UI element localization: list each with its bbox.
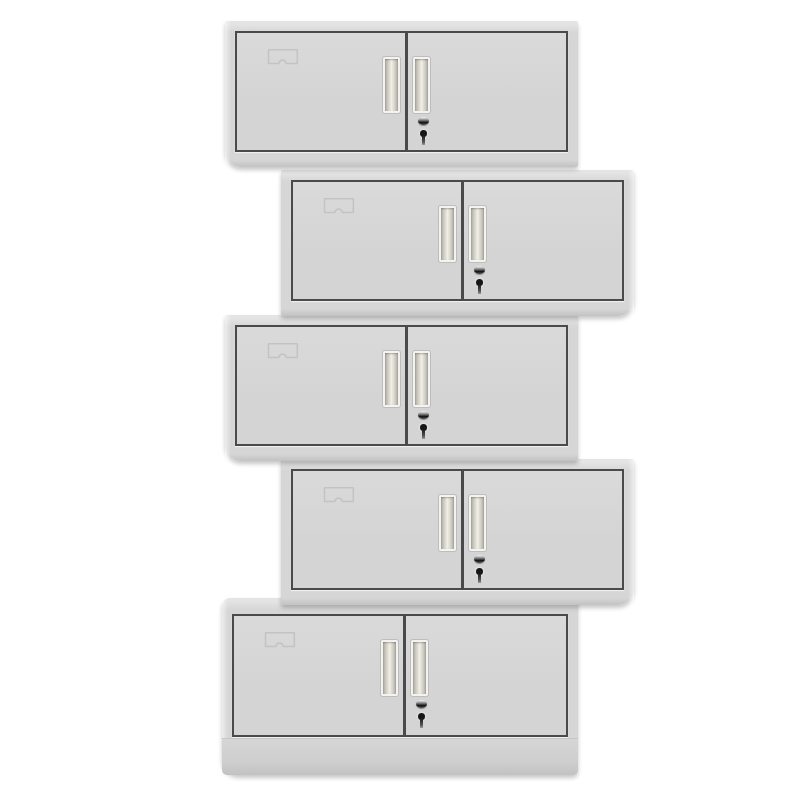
cabinet-door-right [408, 33, 566, 150]
label-card-holder-icon [264, 631, 296, 650]
door-handle-icon [383, 57, 400, 113]
cabinet-door-left [234, 616, 403, 735]
door-handle-icon [383, 351, 400, 407]
product-image [0, 0, 800, 800]
door-handle-icon [413, 351, 430, 407]
cabinet-door-left [293, 471, 461, 588]
label-card-holder-icon [323, 486, 355, 505]
door-handle-icon [469, 495, 486, 551]
cabinet-unit-1 [225, 21, 578, 167]
cabinet-door-right [464, 471, 622, 588]
door-handle-icon [413, 57, 430, 113]
keyhole [476, 279, 483, 286]
cabinet-doors [235, 325, 568, 446]
keyhole-lock-icon [418, 117, 430, 153]
cabinet-unit-2 [281, 170, 634, 316]
cabinet-base [222, 738, 578, 775]
lock-cap [474, 266, 485, 274]
cabinet-door-left [293, 182, 461, 299]
door-handle-icon [381, 640, 398, 696]
keyhole [418, 713, 425, 720]
door-handle-icon [439, 495, 456, 551]
door-handle-icon [439, 206, 456, 262]
cabinet-door-left [237, 33, 405, 150]
label-card-holder-icon [267, 342, 299, 361]
label-card-holder-icon [323, 197, 355, 216]
keyhole-lock-icon [418, 411, 430, 447]
label-card-holder-icon [267, 48, 299, 67]
cabinet-doors [235, 31, 568, 152]
lock-cap [418, 117, 429, 125]
keyhole [476, 568, 483, 575]
cabinet-doors [232, 614, 568, 737]
keyhole [420, 424, 427, 431]
keyhole [420, 130, 427, 137]
cabinet-doors [291, 180, 624, 301]
door-handle-icon [411, 640, 428, 696]
keyhole-lock-icon [474, 266, 486, 302]
lock-cap [416, 700, 427, 708]
cabinet-unit-5 [222, 598, 578, 775]
cabinet-door-right [406, 616, 566, 735]
cabinet-unit-4 [281, 459, 634, 605]
cabinet-door-right [408, 327, 566, 444]
lock-cap [474, 555, 485, 563]
cabinet-unit-3 [225, 315, 578, 461]
cabinet-doors [291, 469, 624, 590]
keyhole-lock-icon [416, 700, 428, 736]
cabinet-door-left [237, 327, 405, 444]
lock-cap [418, 411, 429, 419]
door-handle-icon [469, 206, 486, 262]
cabinet-door-right [464, 182, 622, 299]
keyhole-lock-icon [474, 555, 486, 591]
